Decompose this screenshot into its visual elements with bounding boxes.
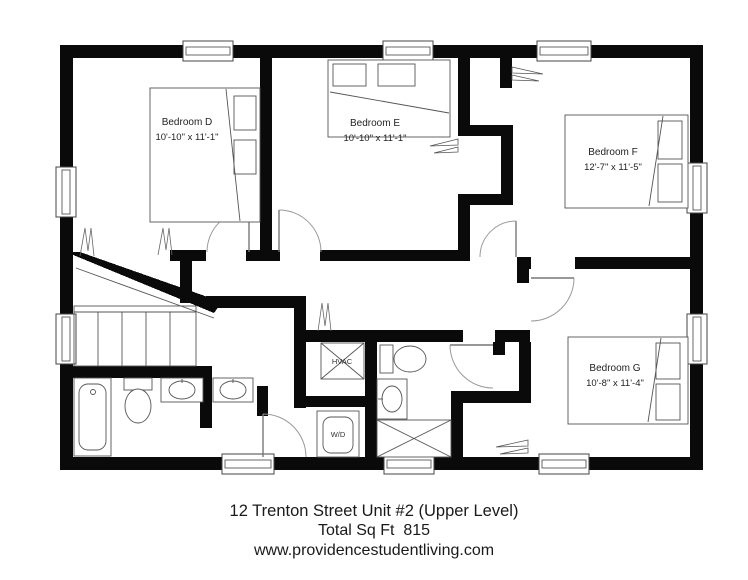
hvac-label: HVAC [332, 357, 353, 366]
window-right-bedroom-f [687, 163, 707, 213]
bathroom-2-fixtures [377, 345, 451, 457]
caption: 12 Trenton Street Unit #2 (Upper Level) … [0, 501, 748, 561]
shower [377, 420, 451, 457]
closet-door-bedroom-f [512, 67, 543, 81]
sink-hall-vanity [213, 378, 253, 402]
bathtub [74, 378, 111, 456]
vent-icon [318, 303, 331, 331]
caption-square-footage: Total Sq Ft 815 [0, 521, 748, 541]
window-right-bedroom-g [687, 314, 707, 364]
bedroom-d-name: Bedroom D [162, 117, 213, 128]
bedroom-d-dims: 10'-10" x 11'-1" [155, 132, 218, 143]
bathroom-1-fixtures [74, 378, 253, 456]
vent-icon [158, 228, 172, 255]
window-bottom-left [222, 454, 274, 474]
sink-bath1 [161, 378, 203, 402]
window-top-bedroom-f [537, 41, 591, 61]
caption-address: 12 Trenton Street Unit #2 (Upper Level) [0, 501, 748, 521]
bedroom-g-dims: 10'-8" x 11'-4" [586, 378, 644, 389]
window-top-bedroom-e [383, 41, 433, 61]
door-bedroom-f [480, 221, 516, 257]
vent-icon [80, 228, 94, 256]
bedroom-e-dims: 10'-10" x 11'-1" [343, 133, 406, 144]
window-left-lower [56, 314, 76, 364]
bedroom-f-name: Bedroom F [588, 147, 637, 158]
sink-bath2 [377, 379, 407, 419]
floor-plan-drawing: HVAC W/D Bedroom D 10'-10" x 11'-1" Bedr… [0, 0, 748, 580]
washer-dryer-label: W/D [331, 430, 346, 439]
door-bathroom-2 [450, 345, 493, 388]
bed-bedroom-d [150, 88, 260, 222]
door-bedroom-e [279, 210, 321, 252]
toilet-bath2 [380, 345, 426, 373]
floor-plan-page: HVAC W/D Bedroom D 10'-10" x 11'-1" Bedr… [0, 0, 748, 580]
door-bedroom-g [531, 278, 574, 321]
washer-dryer-unit: W/D [317, 411, 359, 457]
closet-door-bedroom-e [430, 139, 458, 153]
window-left-upper [56, 167, 76, 217]
bedroom-e-name: Bedroom E [350, 118, 400, 129]
window-top-bedroom-d [183, 41, 233, 61]
bedroom-f-dims: 12'-7" x 11'-5" [584, 162, 642, 173]
bedroom-g-name: Bedroom G [589, 363, 640, 374]
hvac-unit: HVAC [321, 343, 364, 379]
vent-marks [80, 228, 331, 331]
door-laundry-hall [263, 414, 306, 457]
window-bottom-bedroom-g [539, 454, 589, 474]
caption-website: www.providencestudentliving.com [0, 541, 748, 561]
toilet-bath1 [124, 378, 152, 423]
closet-door-bedroom-g [496, 440, 528, 454]
